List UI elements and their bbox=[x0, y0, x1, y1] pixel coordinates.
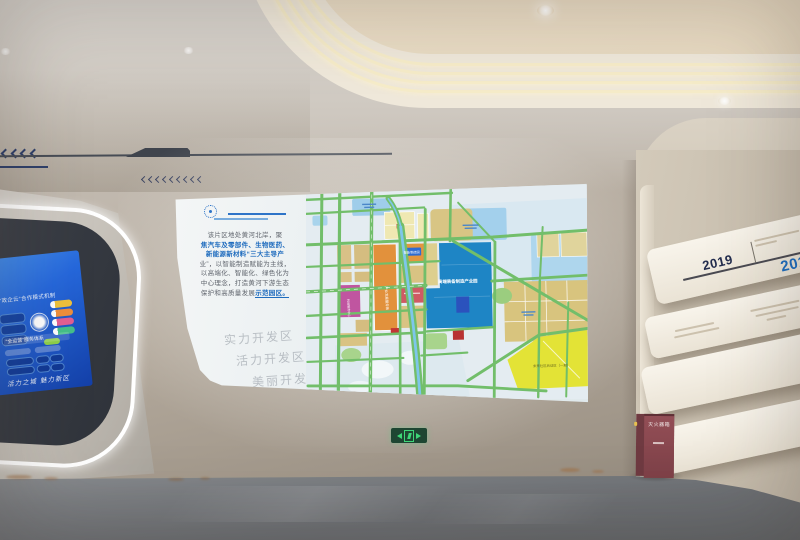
map-label-blue-tag: 智能制造园 bbox=[404, 249, 420, 254]
exit-arrow-left-icon bbox=[397, 433, 402, 439]
zone-tan bbox=[561, 232, 587, 257]
floor-reflection bbox=[417, 494, 622, 524]
exit-sign bbox=[391, 428, 427, 443]
floor-reflection bbox=[155, 486, 455, 522]
skirting-smudge bbox=[200, 477, 210, 480]
kiosk-grid-button[interactable] bbox=[36, 364, 51, 373]
kiosk-grid-button[interactable] bbox=[35, 355, 50, 364]
ceiling-spotlight bbox=[183, 47, 194, 54]
firebox-seal bbox=[634, 422, 637, 426]
kiosk-grid-button[interactable] bbox=[49, 353, 64, 362]
kiosk-pill[interactable] bbox=[52, 317, 75, 326]
logo-dot bbox=[209, 210, 212, 213]
intro-paragraph: 该片区地处黄河北岸，聚 焦汽车及零部件、生物医药、 新能源新材料“三大主导产 业… bbox=[184, 231, 306, 298]
fire-extinguisher-box: 灭火器箱 bbox=[636, 414, 675, 476]
logo-underline-2 bbox=[214, 218, 268, 220]
firebox-label: 灭火器箱 bbox=[644, 421, 674, 428]
intro-line: 保护和高质量发展示范园区。 bbox=[184, 289, 306, 299]
zone-tan bbox=[355, 272, 371, 282]
kiosk-pill[interactable] bbox=[51, 308, 74, 317]
skirting-smudge bbox=[6, 475, 32, 479]
kiosk-grid-button[interactable] bbox=[34, 345, 60, 354]
city-planning-map: 高端装备制造产业园 产业发展服务轴 科创服务中心 未来社区启动区（一期） 智能制… bbox=[306, 185, 588, 399]
exhibition-hall-photo: 该片区地处黄河北岸，聚 焦汽车及零部件、生物医药、 新能源新材料“三大主导产 业… bbox=[0, 0, 800, 540]
exit-arrow-right-icon bbox=[416, 433, 421, 439]
firebox-handle[interactable] bbox=[653, 442, 664, 444]
intro-line: 该片区地处黄河北岸，聚 bbox=[184, 231, 306, 241]
kiosk-grid-button[interactable] bbox=[7, 365, 36, 376]
logo-underline-1 bbox=[228, 213, 286, 215]
skirting-smudge bbox=[44, 477, 58, 480]
skirting-smudge bbox=[560, 468, 580, 472]
skirting-smudge bbox=[168, 478, 184, 481]
kiosk-hub-icon bbox=[29, 312, 50, 333]
zone-pale-yellow bbox=[417, 213, 429, 239]
kiosk-grid-button[interactable] bbox=[50, 362, 65, 371]
intro-line: 中心理念，打造黄河下游生态 bbox=[184, 279, 306, 289]
kiosk-pill[interactable] bbox=[50, 299, 73, 308]
exit-runner-icon bbox=[404, 430, 414, 442]
ceiling-spotlight bbox=[537, 5, 554, 16]
intro-line: 焦汽车及零部件、生物医药、 bbox=[184, 241, 306, 251]
slab-text-line bbox=[766, 315, 786, 321]
intro-line: 业”，以智能制造赋能为主线， bbox=[184, 260, 306, 270]
zone-dark-blue bbox=[456, 297, 469, 313]
runner-figure bbox=[407, 433, 412, 439]
intro-line: 以高端化、智能化、绿色化为 bbox=[184, 269, 306, 279]
firebox-front: 灭火器箱 bbox=[644, 414, 675, 478]
kiosk-screen-title: “政企云”合作模式机制 bbox=[0, 291, 56, 305]
map-label-yellow-zone: 未来社区启动区（一期） bbox=[533, 362, 570, 368]
projection-screen: 该片区地处黄河北岸，聚 焦汽车及零部件、生物医药、 新能源新材料“三大主导产 业… bbox=[168, 183, 588, 403]
kiosk-grid-button[interactable] bbox=[5, 348, 31, 357]
zone-tan bbox=[537, 233, 559, 257]
zone-green-park bbox=[425, 333, 447, 349]
watermark-line: 活力开发区 bbox=[235, 348, 306, 370]
watermark-line: 实力开发区 bbox=[223, 327, 294, 349]
ceiling-spotlight bbox=[718, 97, 731, 105]
intro-line: 新能源新材料“三大主导产 bbox=[184, 250, 306, 260]
map-label-magenta: 科创服务中心 bbox=[346, 299, 352, 317]
zone-tan bbox=[425, 243, 438, 285]
skirting-smudge bbox=[592, 470, 604, 473]
kiosk: “政企云”合作模式机制 “全运营”服务体系 活力之城 魅力新区 bbox=[0, 0, 170, 540]
kiosk-touchscreen[interactable]: “政企云”合作模式机制 “全运营”服务体系 活力之城 魅力新区 bbox=[0, 250, 93, 398]
